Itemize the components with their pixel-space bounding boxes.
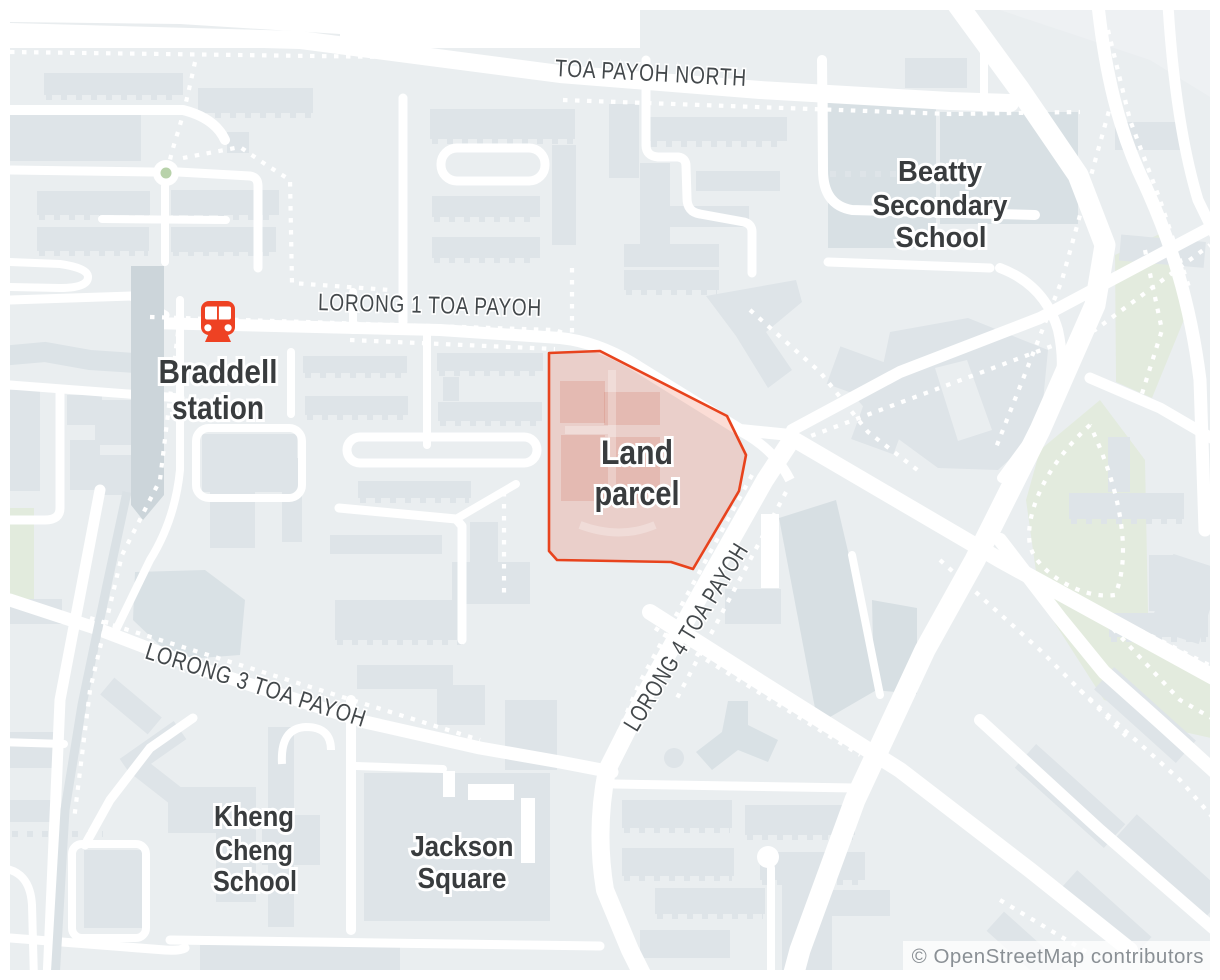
svg-text:Jackson: Jackson — [411, 831, 514, 863]
svg-text:© OpenStreetMap contributors: © OpenStreetMap contributors — [912, 945, 1204, 968]
svg-text:Kheng: Kheng — [214, 801, 294, 833]
svg-text:parcel: parcel — [595, 475, 680, 513]
svg-text:School: School — [896, 222, 987, 254]
svg-text:Braddell: Braddell — [159, 353, 278, 390]
svg-text:station: station — [172, 389, 264, 426]
svg-text:Beatty: Beatty — [898, 156, 982, 188]
svg-text:Secondary: Secondary — [873, 190, 1008, 222]
svg-text:Cheng: Cheng — [215, 835, 293, 867]
svg-text:School: School — [213, 866, 297, 898]
svg-text:Land: Land — [601, 434, 673, 472]
svg-text:Square: Square — [418, 863, 507, 895]
